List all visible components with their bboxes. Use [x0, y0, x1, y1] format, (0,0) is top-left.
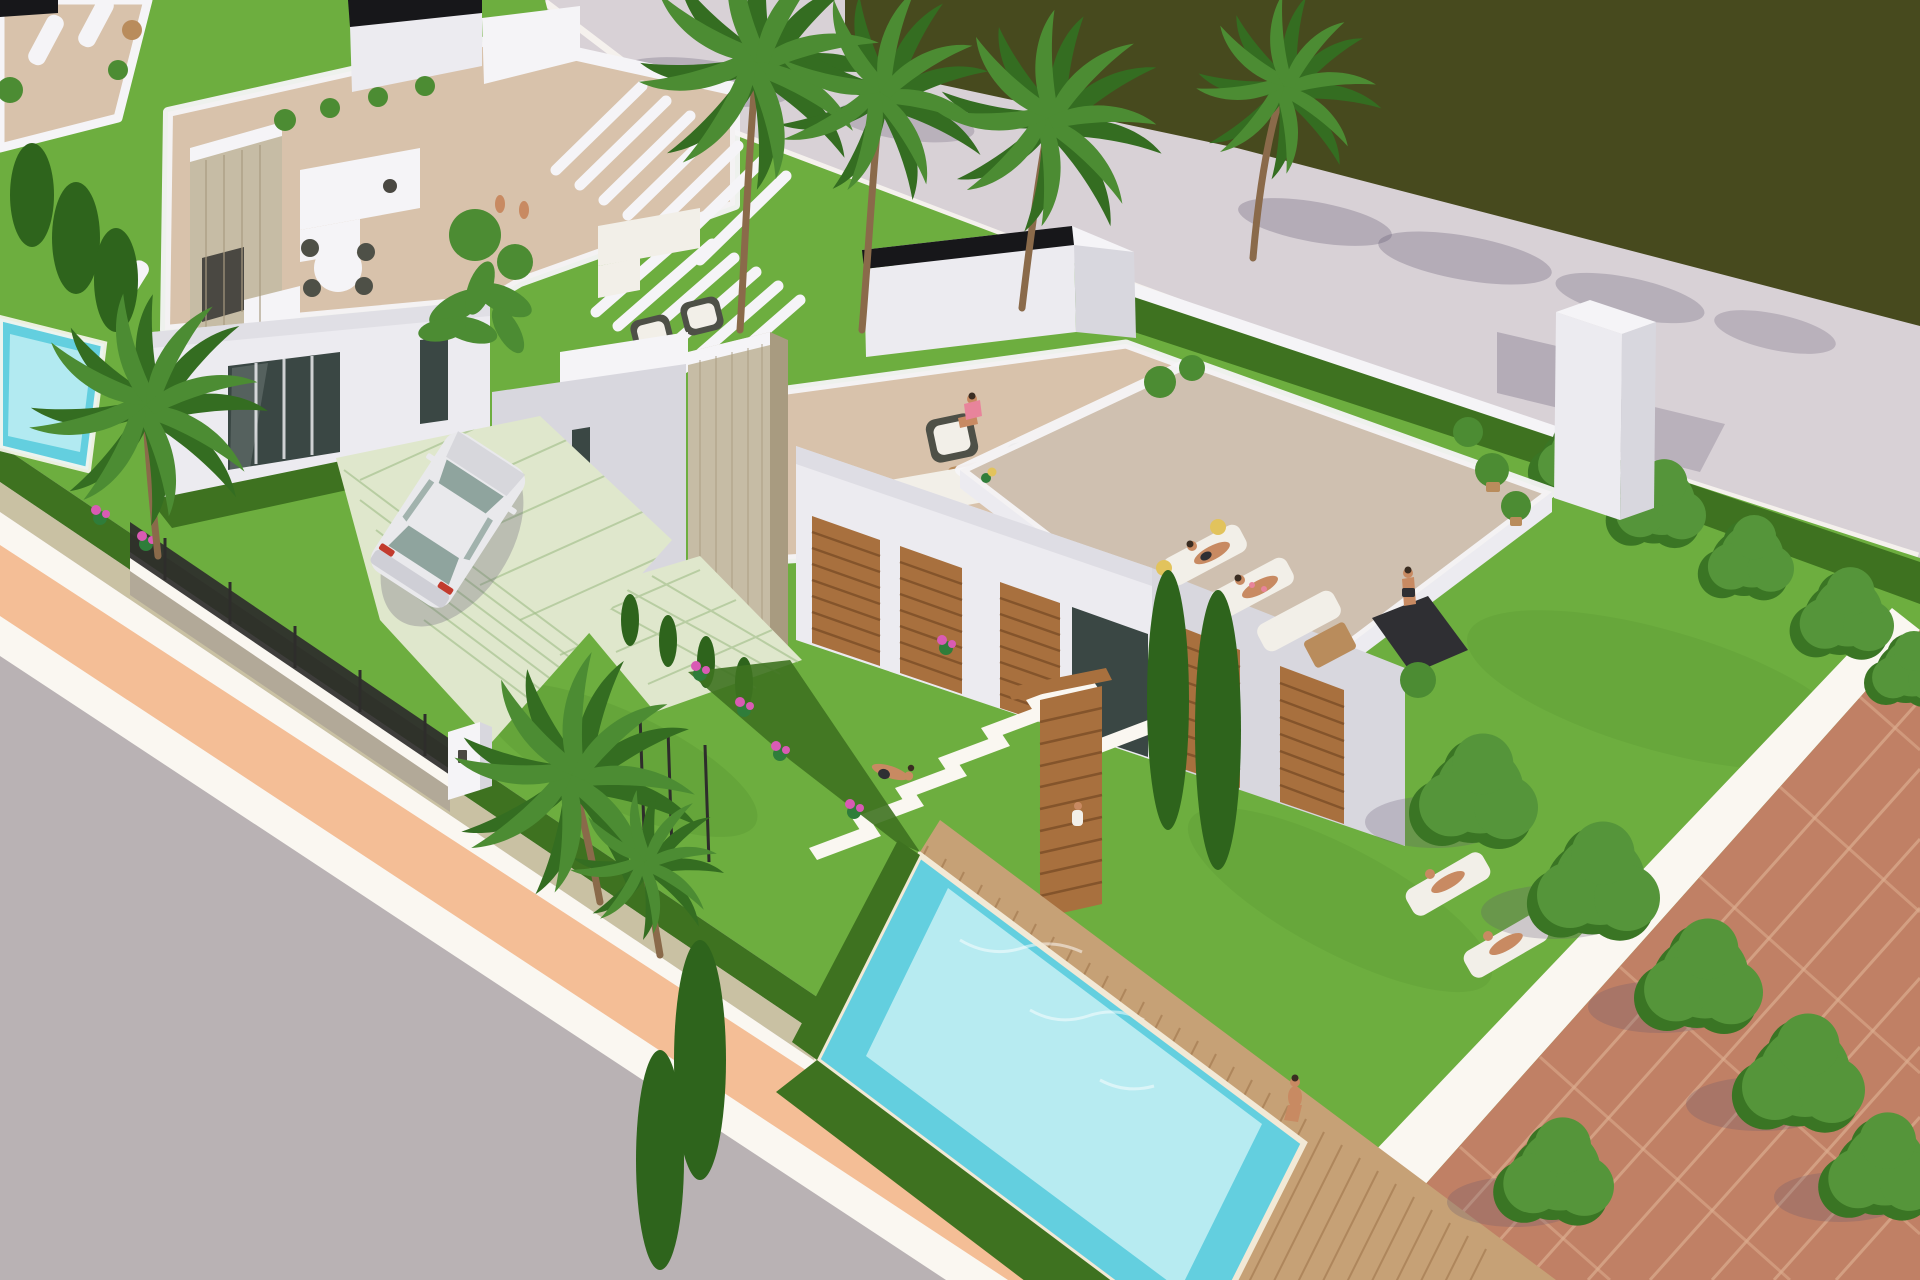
villa1-dining-table [314, 244, 362, 292]
villa3-roofbox-side [1074, 245, 1136, 338]
villa3-chimney-white [1554, 312, 1622, 520]
child-dress [1072, 810, 1083, 826]
render-viewport [0, 0, 1920, 1280]
corner-side-table [122, 20, 142, 40]
